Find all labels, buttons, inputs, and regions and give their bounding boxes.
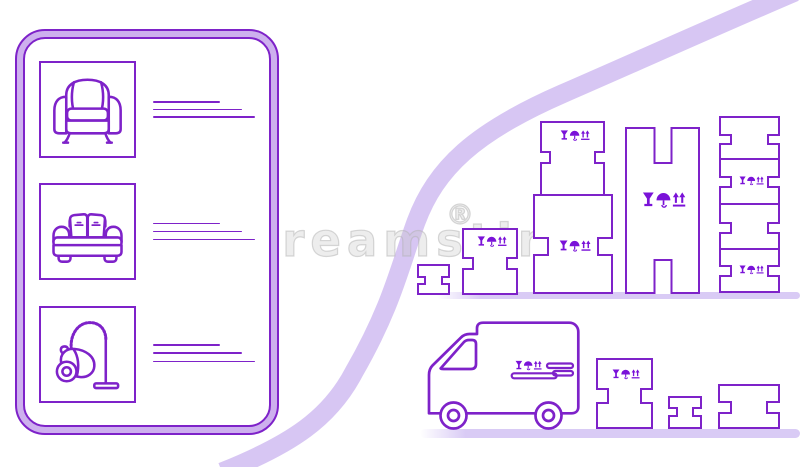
van-window (441, 340, 476, 369)
list-item-card (39, 183, 136, 280)
box-handle-notch (417, 276, 426, 285)
fragile-icons (612, 369, 640, 380)
box-handle-notch (596, 388, 609, 404)
box-flap (653, 127, 672, 164)
delivery-van (420, 312, 585, 432)
text-line (153, 361, 255, 363)
box-handle-notch (640, 388, 653, 404)
list-item-card (39, 61, 136, 158)
fragile-icons (477, 236, 507, 247)
cardboard-tote-box (719, 116, 780, 160)
cardboard-box-medium (596, 358, 653, 429)
box-handle-notch (767, 222, 780, 234)
box-flap (653, 259, 672, 294)
sofa-icon (45, 189, 130, 274)
text-line (153, 239, 255, 241)
box-handle-notch (767, 265, 780, 277)
box-handle-notch (719, 176, 732, 188)
cardboard-tote-box (719, 158, 780, 205)
moving-service-illustration: dreamstime ® (0, 0, 800, 467)
text-line (153, 101, 220, 103)
fragile-icons (642, 192, 686, 208)
box-handle-notch (506, 257, 518, 270)
fragile-icons (739, 265, 764, 275)
text-line (153, 109, 242, 111)
box-handle-notch (533, 237, 549, 256)
cardboard-tote-box (719, 203, 780, 250)
vacuum-cleaner-icon (45, 312, 130, 397)
fragile-icons (739, 176, 764, 186)
armchair-icon (45, 67, 130, 152)
cardboard-tote-box (719, 248, 780, 293)
box-handle-notch (594, 151, 605, 164)
box-handle-notch (719, 134, 732, 145)
box-handle-notch (719, 265, 732, 277)
text-line (153, 344, 220, 346)
cardboard-box-tall (625, 127, 700, 294)
box-handle-notch (462, 257, 474, 270)
cardboard-box-small (462, 228, 518, 295)
box-handle-notch (718, 401, 732, 414)
cardboard-box-tiny (417, 264, 450, 295)
box-handle-notch (540, 151, 551, 164)
cardboard-box-stack-bottom (533, 194, 613, 294)
list-item-card (39, 306, 136, 403)
fragile-icons (559, 240, 591, 252)
cardboard-box-wide (718, 384, 780, 429)
tablet-frame (15, 29, 279, 435)
box-handle-notch (719, 222, 732, 234)
registered-trademark-icon: ® (446, 198, 474, 231)
box-handle-notch (767, 134, 780, 145)
text-line (153, 231, 242, 233)
box-handle-notch (692, 407, 702, 417)
box-handle-notch (597, 237, 613, 256)
box-handle-notch (766, 401, 780, 414)
box-handle-notch (668, 407, 678, 417)
cardboard-box-small (668, 396, 702, 429)
box-handle-notch (441, 276, 450, 285)
fragile-icons (560, 130, 590, 141)
box-handle-notch (767, 176, 780, 188)
text-line (153, 116, 255, 118)
text-line (153, 352, 242, 354)
cardboard-box-stack-top (540, 121, 605, 196)
van-logo-fragile-icons (516, 361, 542, 370)
text-line (153, 223, 220, 225)
